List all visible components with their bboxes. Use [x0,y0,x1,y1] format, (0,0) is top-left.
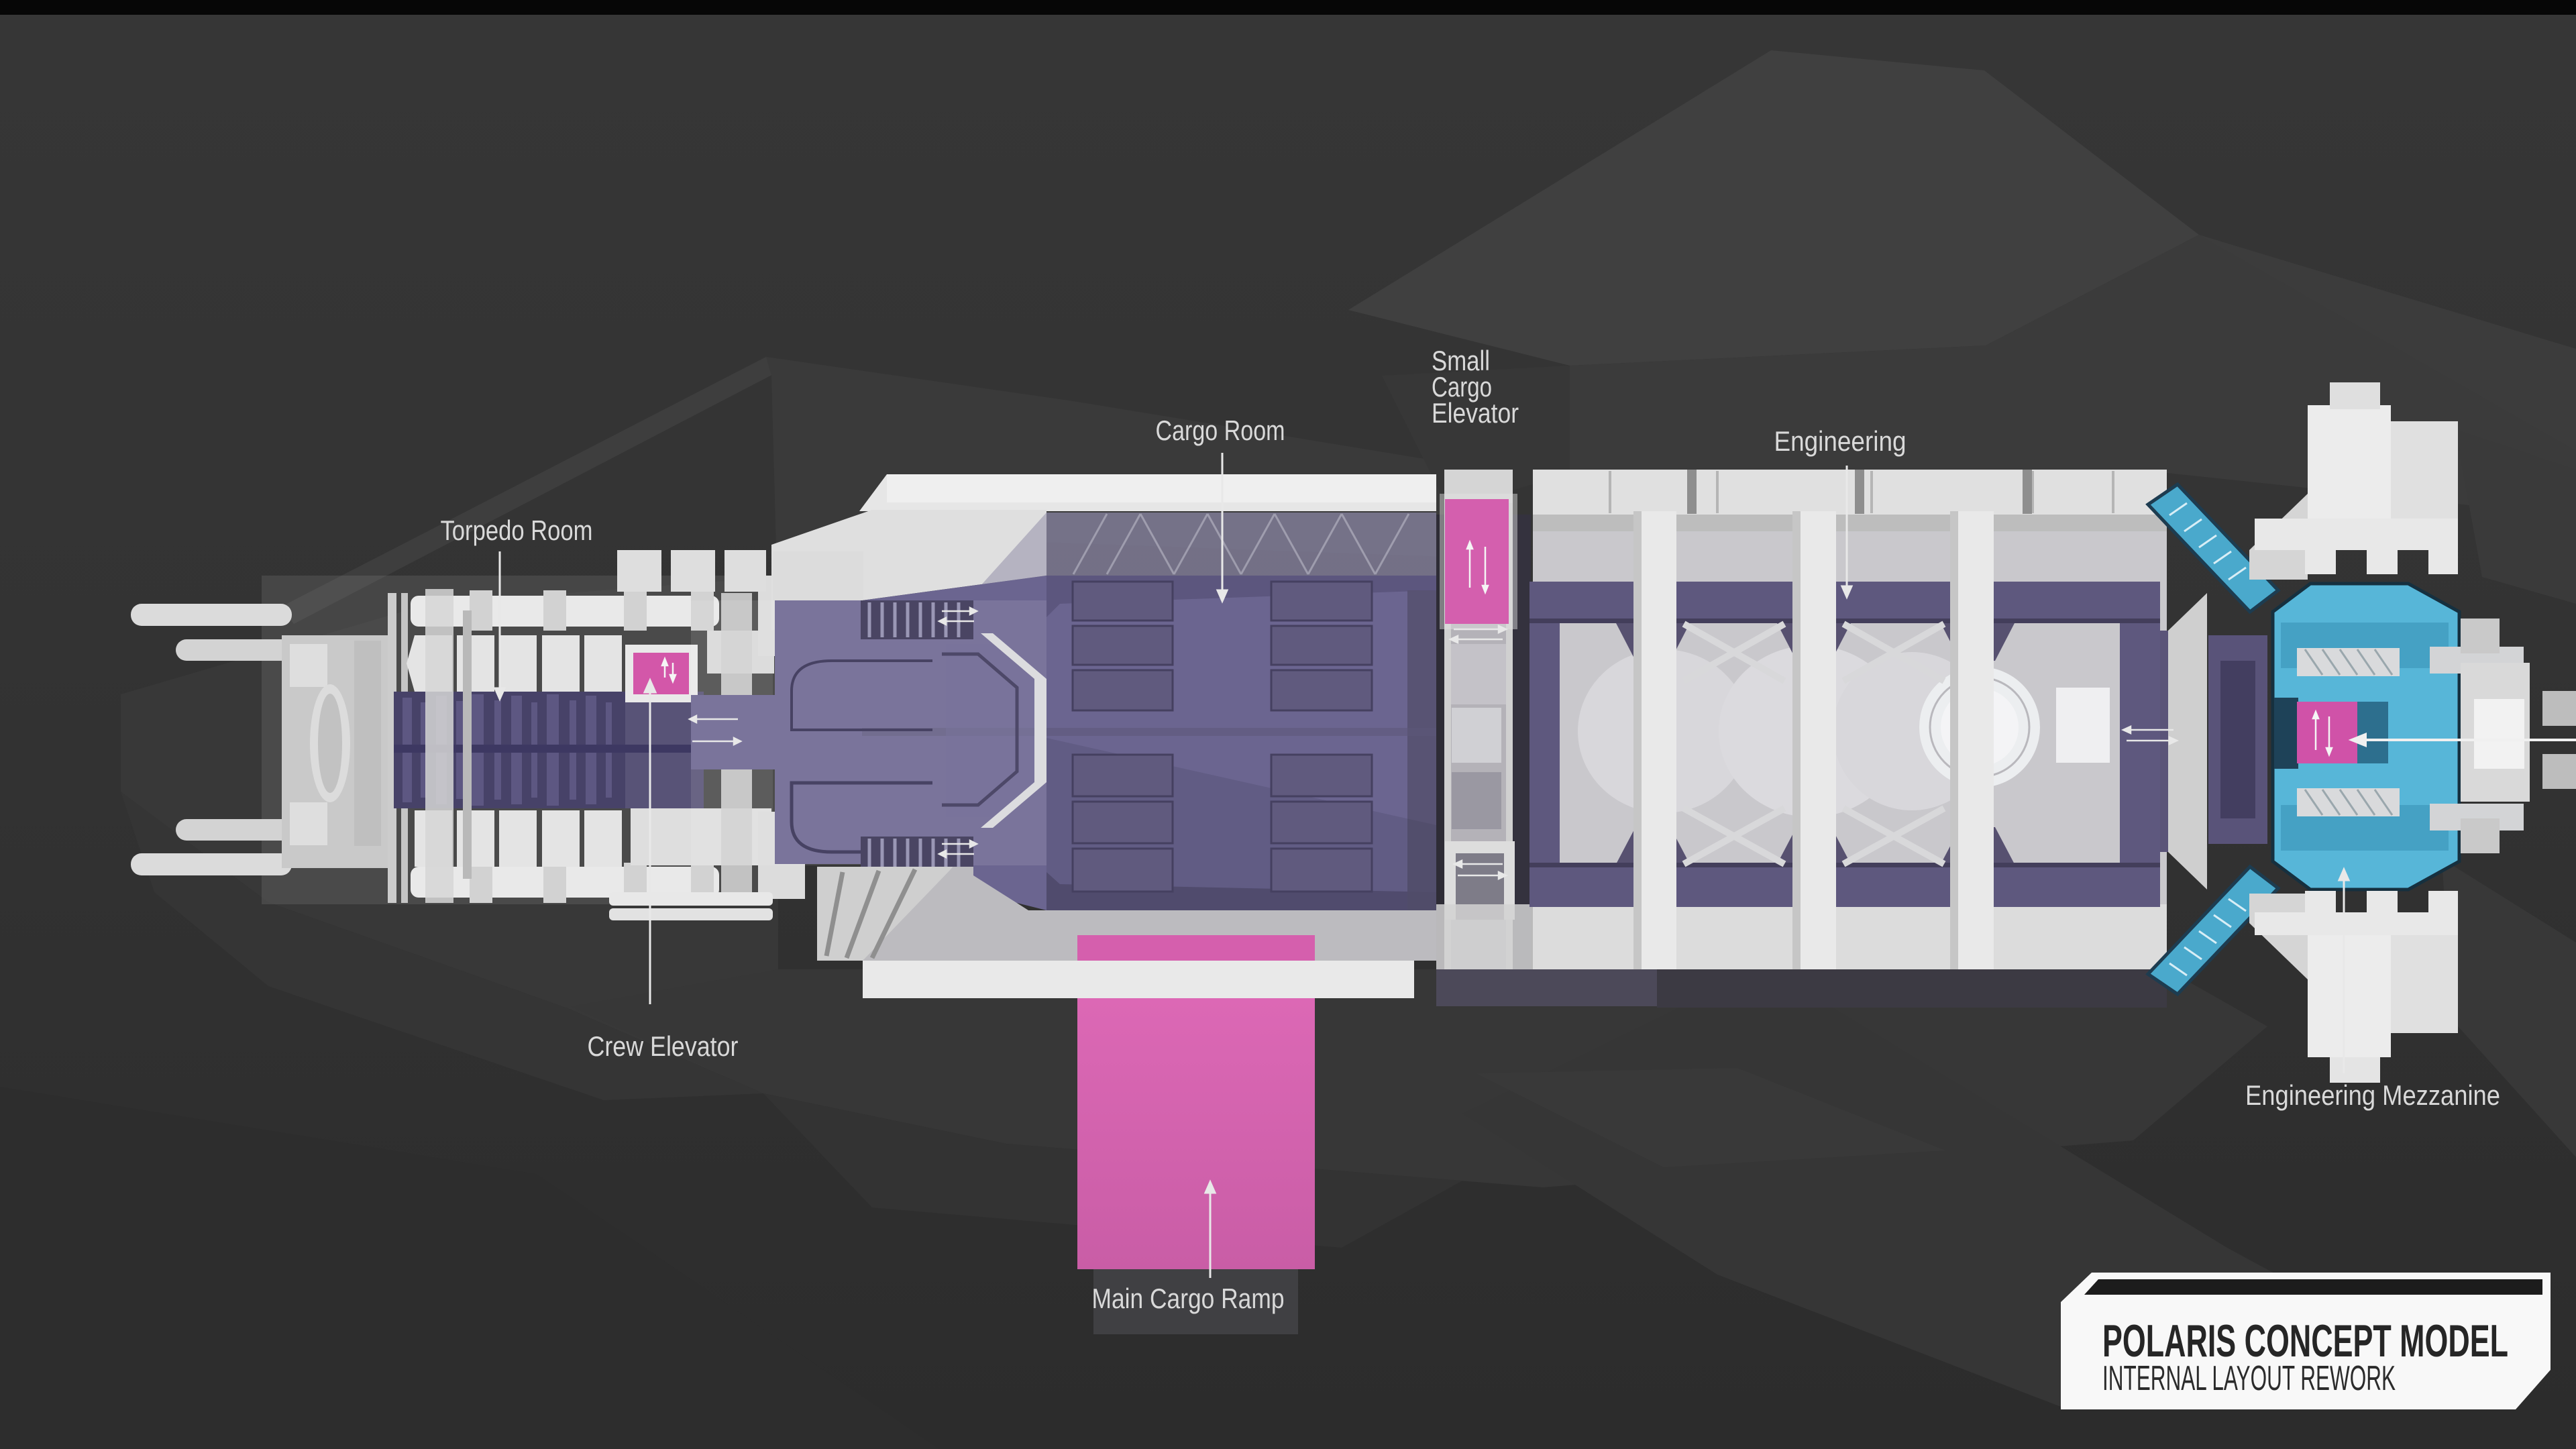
svg-text:Cargo Room: Cargo Room [1156,415,1285,446]
svg-text:Main Cargo Ramp: Main Cargo Ramp [1092,1283,1285,1314]
svg-text:Engineering Mezzanine: Engineering Mezzanine [2245,1079,2500,1111]
svg-text:Elevator: Elevator [1432,397,1519,429]
svg-text:INTERNAL LAYOUT REWORK: INTERNAL LAYOUT REWORK [2102,1359,2396,1398]
svg-text:Crew Elevator: Crew Elevator [588,1030,739,1062]
svg-text:Engineering: Engineering [1774,425,1907,457]
svg-text:Torpedo Room: Torpedo Room [441,515,593,546]
